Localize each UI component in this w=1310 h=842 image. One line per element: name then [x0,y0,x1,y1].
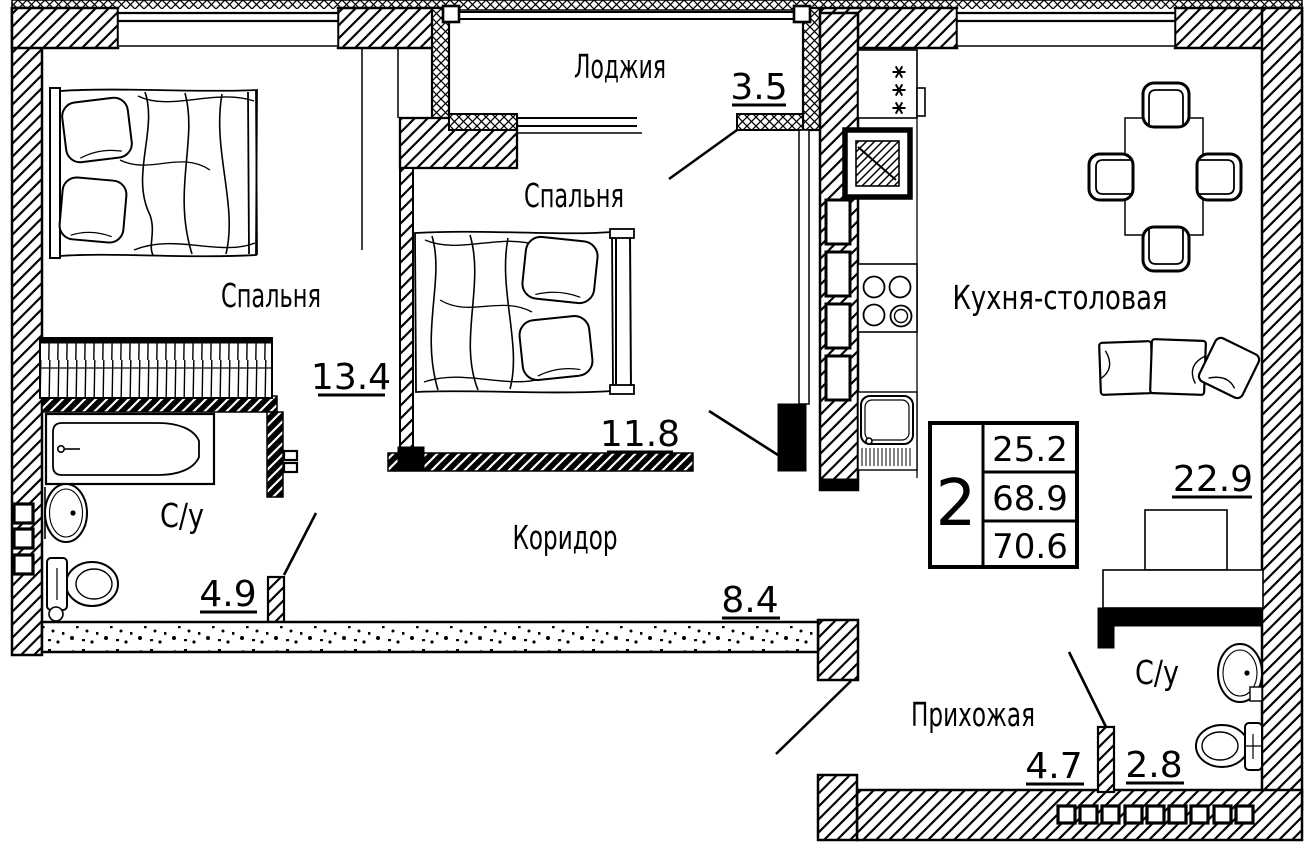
window-bedroom1 [118,9,338,47]
area-kitchen: 22.9 [1173,459,1253,500]
cabinet-icon [1103,510,1263,608]
toilet-2-icon [1196,723,1262,770]
wall-loggia-sill-left [449,114,517,130]
window-loggia-bedroom2 [517,118,642,133]
area-bedroom1: 13.4 [311,357,391,398]
wall-bedroom2-right-thin [799,130,809,404]
label-bathroom1: С/у [160,496,204,535]
wall-bedroom2-bottom-cap [398,447,424,471]
stamp-apartment-area: 68.9 [992,479,1068,519]
chair-icon [1143,83,1189,127]
wall-bathroom2-top [1098,608,1262,626]
area-hallway: 4.7 [1025,746,1082,787]
wall-entrance-block [818,775,857,840]
floor-plan: 2 25.2 68.9 70.6 Лоджия 3.5 Спальня 11.8… [0,0,1310,842]
wall-bathroom1-right [267,412,283,497]
entrance-mat-squares [1058,806,1253,823]
door-entrance [776,681,851,754]
wall-corridor-south [42,622,818,652]
room-labels: Лоджия 3.5 Спальня 11.8 Спальня 13.4 Кух… [160,47,1253,787]
vent-shaft-icon [845,130,910,197]
door-bathroom2 [1069,652,1106,727]
wall-top-a [12,8,118,48]
washbasin-2-icon [1218,644,1262,702]
apartment-stamp: 2 25.2 68.9 70.6 [930,423,1077,567]
door-balcony [669,130,737,179]
chair-icon [1143,227,1189,271]
label-hallway: Прихожая [911,695,1035,734]
wall-bathroom1-jamb [268,577,284,622]
area-corridor: 8.4 [721,580,778,621]
pipe-bracket [284,451,297,472]
stamp-rooms-count: 2 [936,467,977,541]
label-kitchen: Кухня-столовая [953,278,1168,317]
chair-icon [1089,154,1133,200]
wall-loggia-right [803,8,820,130]
wall-entrance-pier [818,620,858,680]
label-bathroom2: С/у [1135,653,1179,692]
bathtub-icon [46,414,214,484]
wall-bathroom2-pier [1098,620,1114,648]
label-corridor: Коридор [513,518,618,557]
bed-1-icon [50,88,257,258]
area-loggia: 3.5 [730,67,787,108]
wall-kitchen-left-cap [820,479,858,490]
washbasin-1-icon [45,484,87,542]
parapet-strip [12,0,1302,10]
wardrobe-icon [40,338,272,398]
wall-loggia-left [432,8,449,130]
bed-2-icon [415,229,634,394]
stamp-total-area: 70.6 [992,527,1068,567]
area-bathroom1: 4.9 [199,574,256,615]
riser-squares [14,504,33,574]
label-loggia: Лоджия [574,47,666,86]
stamp-living-area: 25.2 [992,430,1068,470]
wall-bedroom2-bottom [388,453,693,471]
wall-corridor-corner [778,404,806,471]
dining-table-icon [1125,118,1203,235]
toilet-1-icon [47,558,118,621]
area-bathroom2: 2.8 [1125,745,1182,786]
chair-icon [1197,154,1241,200]
area-bedroom2: 11.8 [600,414,680,455]
wall-top-b [338,8,445,48]
label-bedroom2: Спальня [524,176,624,215]
wall-loggia-sill-right [737,114,803,130]
fridge-icon [858,50,925,118]
label-bedroom1: Спальня [221,276,321,315]
wall-bedroom2-left [400,168,413,455]
wall-right [1262,8,1302,810]
sofa-pillows-icon [1099,336,1261,400]
door-bedroom2 [709,411,778,455]
door-bathroom1 [284,513,316,575]
stove-icon [858,264,917,332]
kitchen-sink-icon [858,392,917,470]
wall-bathroom2-partition [1098,727,1114,792]
window-kitchen [957,9,1175,47]
